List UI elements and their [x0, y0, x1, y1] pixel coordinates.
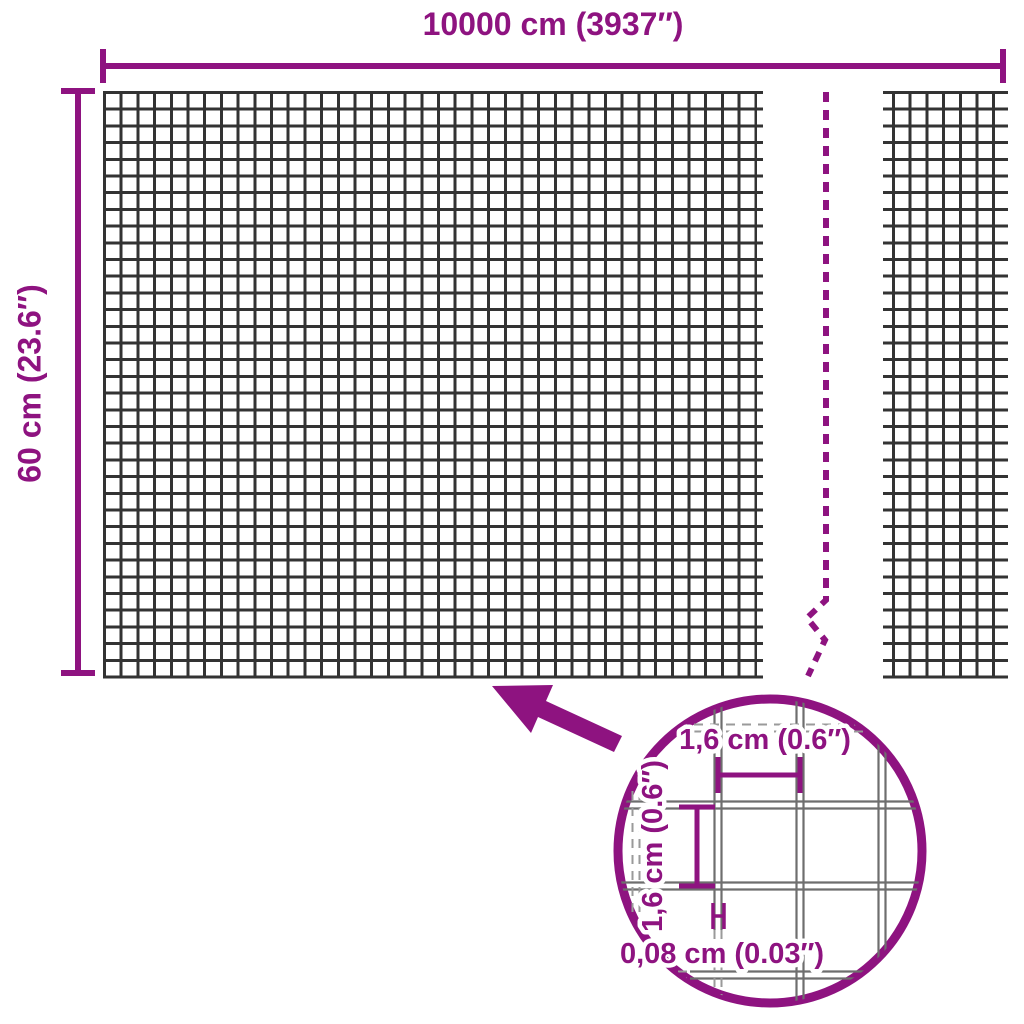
- product-dimension-diagram: 10000 cm (3937″) 60 cm (23.6″): [0, 0, 1024, 1024]
- mesh-break-dashed-line: [807, 92, 826, 676]
- detail-cell-height-label: 1,6 cm (0.6″): [637, 760, 669, 932]
- magnifier-arrow-icon: [492, 685, 622, 752]
- diagram-overlay: 1,6 cm (0.6″) 1,6 cm (0.6″) 0,08 cm (0.0…: [0, 0, 1024, 1024]
- detail-wire-thickness-label: 0,08 cm (0.03″): [620, 938, 824, 970]
- detail-cell-width-label: 1,6 cm (0.6″): [679, 724, 851, 756]
